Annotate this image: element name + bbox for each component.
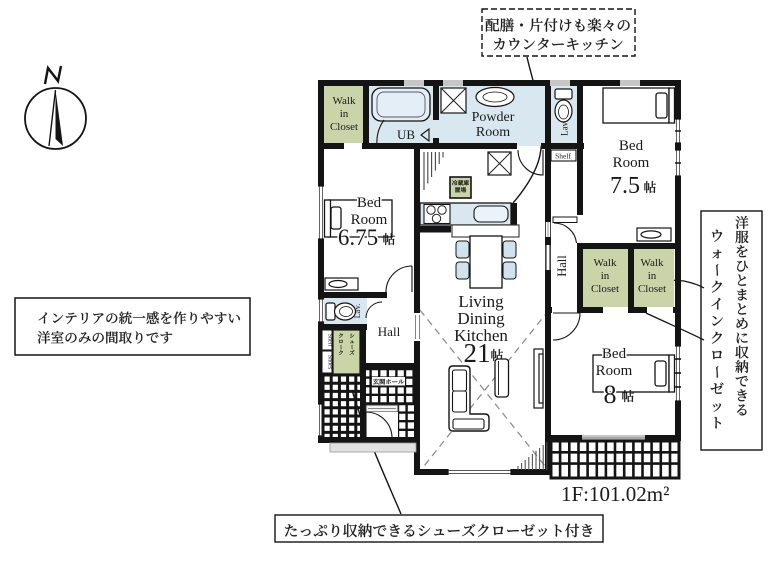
svg-text:Closet: Closet [330, 121, 358, 133]
svg-text:Bed: Bed [602, 346, 627, 362]
svg-text:6.75: 6.75 [338, 225, 378, 250]
svg-text:in: in [648, 270, 657, 282]
svg-text:1F:101.02m²: 1F:101.02m² [561, 482, 669, 506]
svg-text:Bed: Bed [619, 138, 644, 154]
svg-text:Closet: Closet [591, 283, 619, 295]
svg-text:Hall: Hall [378, 324, 401, 339]
svg-text:Shoes: Shoes [327, 355, 333, 370]
svg-text:UB: UB [397, 127, 415, 142]
svg-text:Walk: Walk [594, 257, 617, 269]
svg-text:Powder: Powder [472, 110, 515, 125]
svg-text:Shelf: Shelf [327, 334, 334, 347]
svg-text:8: 8 [604, 380, 617, 409]
svg-text:Hall: Hall [555, 255, 569, 277]
svg-text:21: 21 [464, 338, 491, 368]
svg-text:Walk: Walk [641, 257, 664, 269]
svg-text:Lav.: Lav. [560, 120, 570, 136]
svg-text:in: in [601, 270, 610, 282]
svg-text:in: in [340, 108, 349, 120]
svg-text:Room: Room [476, 125, 510, 140]
svg-text:Walk: Walk [333, 95, 356, 107]
svg-text:Closet: Closet [638, 283, 666, 295]
svg-text:Lav.: Lav. [352, 304, 362, 319]
svg-text:7.5: 7.5 [610, 173, 640, 199]
svg-text:Room: Room [596, 363, 633, 379]
svg-text:Shelf: Shelf [555, 152, 571, 161]
svg-text:Room: Room [613, 155, 650, 171]
svg-text:Bed: Bed [357, 195, 382, 211]
